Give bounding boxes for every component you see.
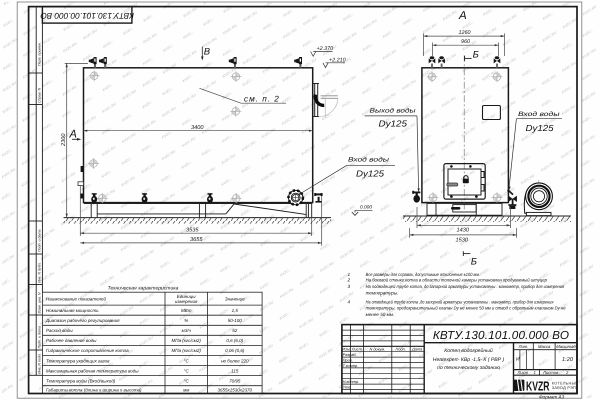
svg-text:50-100: 50-100 [228,318,243,323]
svg-text:Рабочее давление воды: Рабочее давление воды [46,338,97,343]
svg-text:МВт: МВт [181,308,192,313]
svg-text:70/95: 70/95 [229,378,241,383]
svg-text:0.000: 0.000 [360,205,372,211]
svg-text:Формат А3: Формат А3 [539,395,565,400]
svg-text:Лист: Лист [351,347,363,352]
svg-text:Подп. и дата: Подп. и дата [38,326,42,349]
svg-text:2: 2 [347,278,351,283]
svg-text:Инв. N дубл.: Инв. N дубл. [38,262,42,283]
svg-text:В: В [204,47,211,58]
svg-text:4: 4 [348,300,351,305]
svg-text:Номинальная мощность: Номинальная мощность [46,308,99,313]
svg-text:ЗАВОД РЭП: ЗАВОД РЭП [552,386,576,390]
svg-text:0,6 (6,0): 0,6 (6,0) [226,338,243,343]
svg-text:2300: 2300 [61,133,67,147]
svg-text:3535: 3535 [186,227,199,233]
svg-text:по техническому заданию: по техническому заданию [437,365,500,371]
svg-text:1:20: 1:20 [562,357,574,363]
svg-text:Перв. примен.: Перв. примен. [38,42,42,66]
svg-text:МПа (кгс/см2): МПа (кгс/см2) [172,338,202,343]
svg-text:Выход воды: Выход воды [370,108,416,115]
svg-text:Дата: Дата [411,347,423,352]
svg-text:Подп. и дата: Подп. и дата [38,230,42,253]
svg-text:Вход воды: Вход воды [348,157,389,164]
svg-text:3655х1530х2370: 3655х1530х2370 [218,387,253,392]
svg-text:3400: 3400 [191,125,204,131]
svg-text:KVZR: KVZR [526,379,550,394]
svg-text:Расход воды: Расход воды [46,328,73,333]
svg-text:Подп.: Подп. [396,347,406,352]
svg-text:N докум.: N докум. [370,347,386,352]
svg-text:На отводящей трубе котла ,до з: На отводящей трубе котла ,до запорной ар… [366,300,554,305]
svg-text:И: И [516,356,520,362]
svg-text:температуры.: температуры. [366,291,399,296]
svg-text:Dy125: Dy125 [356,169,384,179]
svg-text:°С: °С [184,358,190,363]
svg-text:МПа (кгс/см2): МПа (кгс/см2) [172,348,202,353]
svg-text:КОТЕЛЬНЫЙ: КОТЕЛЬНЫЙ [552,380,579,385]
svg-text:Температура уходящих газов: Температура уходящих газов [46,358,110,363]
svg-text:Heatexpert- КВр -1,5- К ( РВР: Heatexpert- КВр -1,5- К ( РВР ) [433,357,505,363]
svg-text:На подводящей трубе котла, д: На подводящей трубе котла, до запорной а… [366,284,565,289]
svg-text:Инв. N подл.: Инв. N подл. [38,353,42,374]
svg-text:менее 50 мм.: менее 50 мм. [366,312,395,317]
svg-text:А: А [69,129,77,141]
svg-text:1,5: 1,5 [232,308,239,313]
svg-text:%: % [184,318,188,323]
svg-text:Разраб.: Разраб. [343,352,357,357]
svg-text:измерения: измерения [175,299,198,304]
svg-text:3655: 3655 [190,237,203,243]
svg-text:1: 1 [534,370,536,375]
svg-text:Б: Б [473,50,479,61]
svg-text:Техническая характеристика: Техническая характеристика [108,286,179,292]
svg-text:Пров.: Пров. [343,357,353,362]
svg-text:Утв.: Утв. [343,384,352,389]
svg-text:КВТУ.130.101.00.000 ВО: КВТУ.130.101.00.000 ВО [433,329,569,342]
svg-text:см. п. 2: см. п. 2 [244,94,280,103]
svg-text:115: 115 [231,368,239,373]
svg-text:52: 52 [232,328,238,333]
svg-text:Единицы: Единицы [177,294,197,299]
svg-text:Значение: Значение [225,297,245,302]
svg-text:Взам. инв. N: Взам. инв. N [38,292,42,313]
svg-text:Dy125: Dy125 [379,118,408,128]
svg-text:0,06 (0,6): 0,06 (0,6) [225,348,245,353]
svg-text:Котел водогрейный: Котел водогрейный [444,348,493,354]
svg-text:А: А [458,10,467,22]
svg-text:Dy125: Dy125 [526,123,554,133]
svg-text:Б: Б [471,256,477,267]
svg-text:Вход воды: Вход воды [518,111,560,118]
svg-text:+2.210: +2.210 [329,57,346,63]
svg-text:+2.370: +2.370 [317,46,334,52]
svg-text:Диапазон рабочего регулировани: Диапазон рабочего регулирования [45,318,120,323]
svg-text:мм: мм [183,387,189,392]
svg-text:Масса: Масса [538,344,551,349]
svg-text:1260: 1260 [459,30,471,36]
svg-text:Наименование показателей: Наименование показателей [46,297,107,302]
svg-text:3: 3 [348,284,351,289]
svg-text:Все размеры для справок, допус: Все размеры для справок, допустимые откл… [366,272,480,277]
svg-text:°С: °С [184,368,190,373]
svg-text:Лист: Лист [517,370,529,375]
svg-text:Температура воды (Вход/выход): Температура воды (Вход/выход) [46,378,116,383]
svg-text:1530: 1530 [456,237,469,243]
svg-text:Максимальная рабочая температу: Максимальная рабочая температура воды [46,368,139,373]
svg-text:Н.контр.: Н.контр. [343,379,359,384]
svg-text:КВТУ.130.101.00.000 ВО: КВТУ.130.101.00.000 ВО [40,11,134,21]
svg-text:Т.контр.: Т.контр. [343,363,359,368]
svg-text:°С: °С [184,378,190,383]
svg-text:960: 960 [461,39,470,45]
svg-text:Гидравлическое сопротивление к: Гидравлическое сопротивление котла [46,348,129,353]
svg-text:Справ. N: Справ. N [38,88,42,103]
svg-text:Листов: Листов [542,370,559,375]
svg-text:не более 220: не более 220 [221,358,249,363]
svg-text:Масштаб: Масштаб [556,344,576,349]
svg-text:температуры, предохранительный: температуры, предохранительный клапан Dу… [366,306,566,311]
svg-text:Габариты котла (длина х ширина: Габариты котла (длина х ширина х высота) [46,387,142,392]
svg-text:На боковой стенке котла в обла: На боковой стенке котла в области топочн… [366,278,548,283]
svg-text:1: 1 [348,272,351,277]
svg-text:Изм.: Изм. [342,347,350,352]
svg-text:Лит.: Лит. [518,344,529,349]
svg-text:м3/ч: м3/ч [182,328,192,333]
svg-text:1430: 1430 [457,228,470,234]
